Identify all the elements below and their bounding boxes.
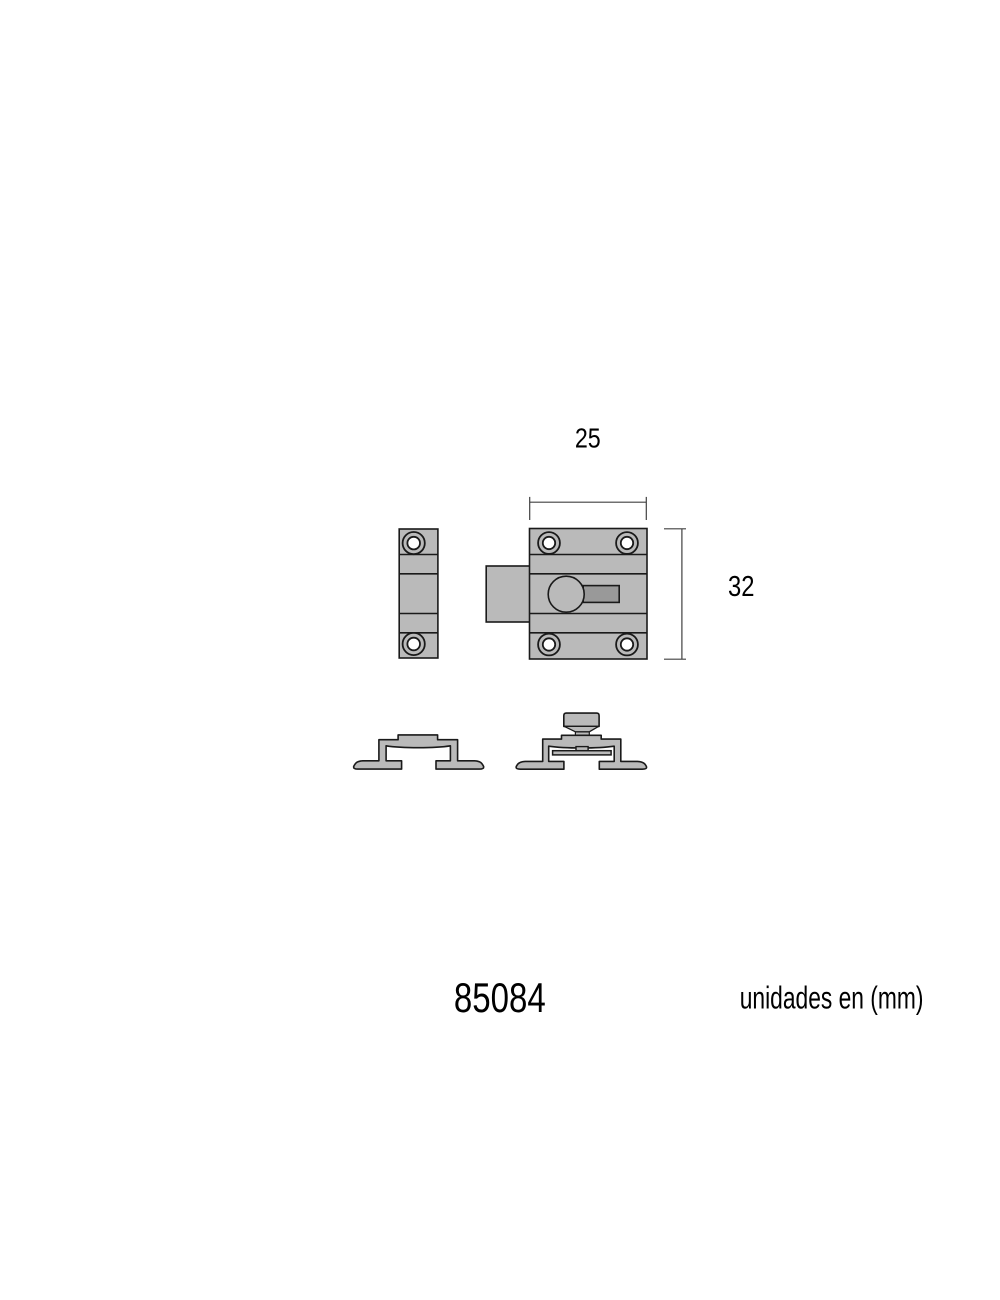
svg-text:32: 32 [728, 570, 754, 603]
svg-text:85084: 85084 [454, 974, 546, 1020]
svg-text:unidades en (mm): unidades en (mm) [740, 980, 924, 1016]
svg-text:25: 25 [575, 424, 601, 454]
